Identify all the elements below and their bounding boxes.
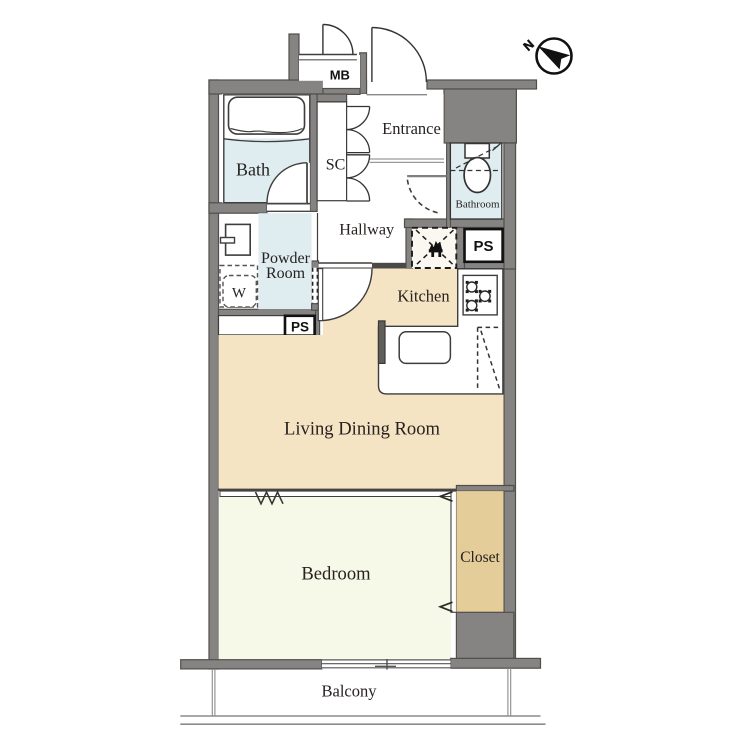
svg-text:Kitchen: Kitchen [397, 287, 449, 306]
svg-text:PS: PS [291, 320, 309, 335]
svg-text:W: W [232, 286, 247, 302]
svg-text:Living Dining Room: Living Dining Room [284, 419, 441, 440]
svg-text:PS: PS [473, 238, 493, 255]
svg-text:Balcony: Balcony [322, 682, 378, 701]
svg-text:MB: MB [330, 68, 350, 83]
svg-text:Bathroom: Bathroom [456, 199, 500, 211]
svg-text:Closet: Closet [460, 549, 500, 566]
svg-text:Hallway: Hallway [339, 221, 395, 239]
svg-text:Bath: Bath [236, 160, 270, 180]
svg-text:Room: Room [266, 265, 306, 282]
svg-text:Bedroom: Bedroom [301, 564, 371, 585]
svg-text:Entrance: Entrance [382, 119, 441, 138]
svg-text:SC: SC [326, 157, 346, 174]
